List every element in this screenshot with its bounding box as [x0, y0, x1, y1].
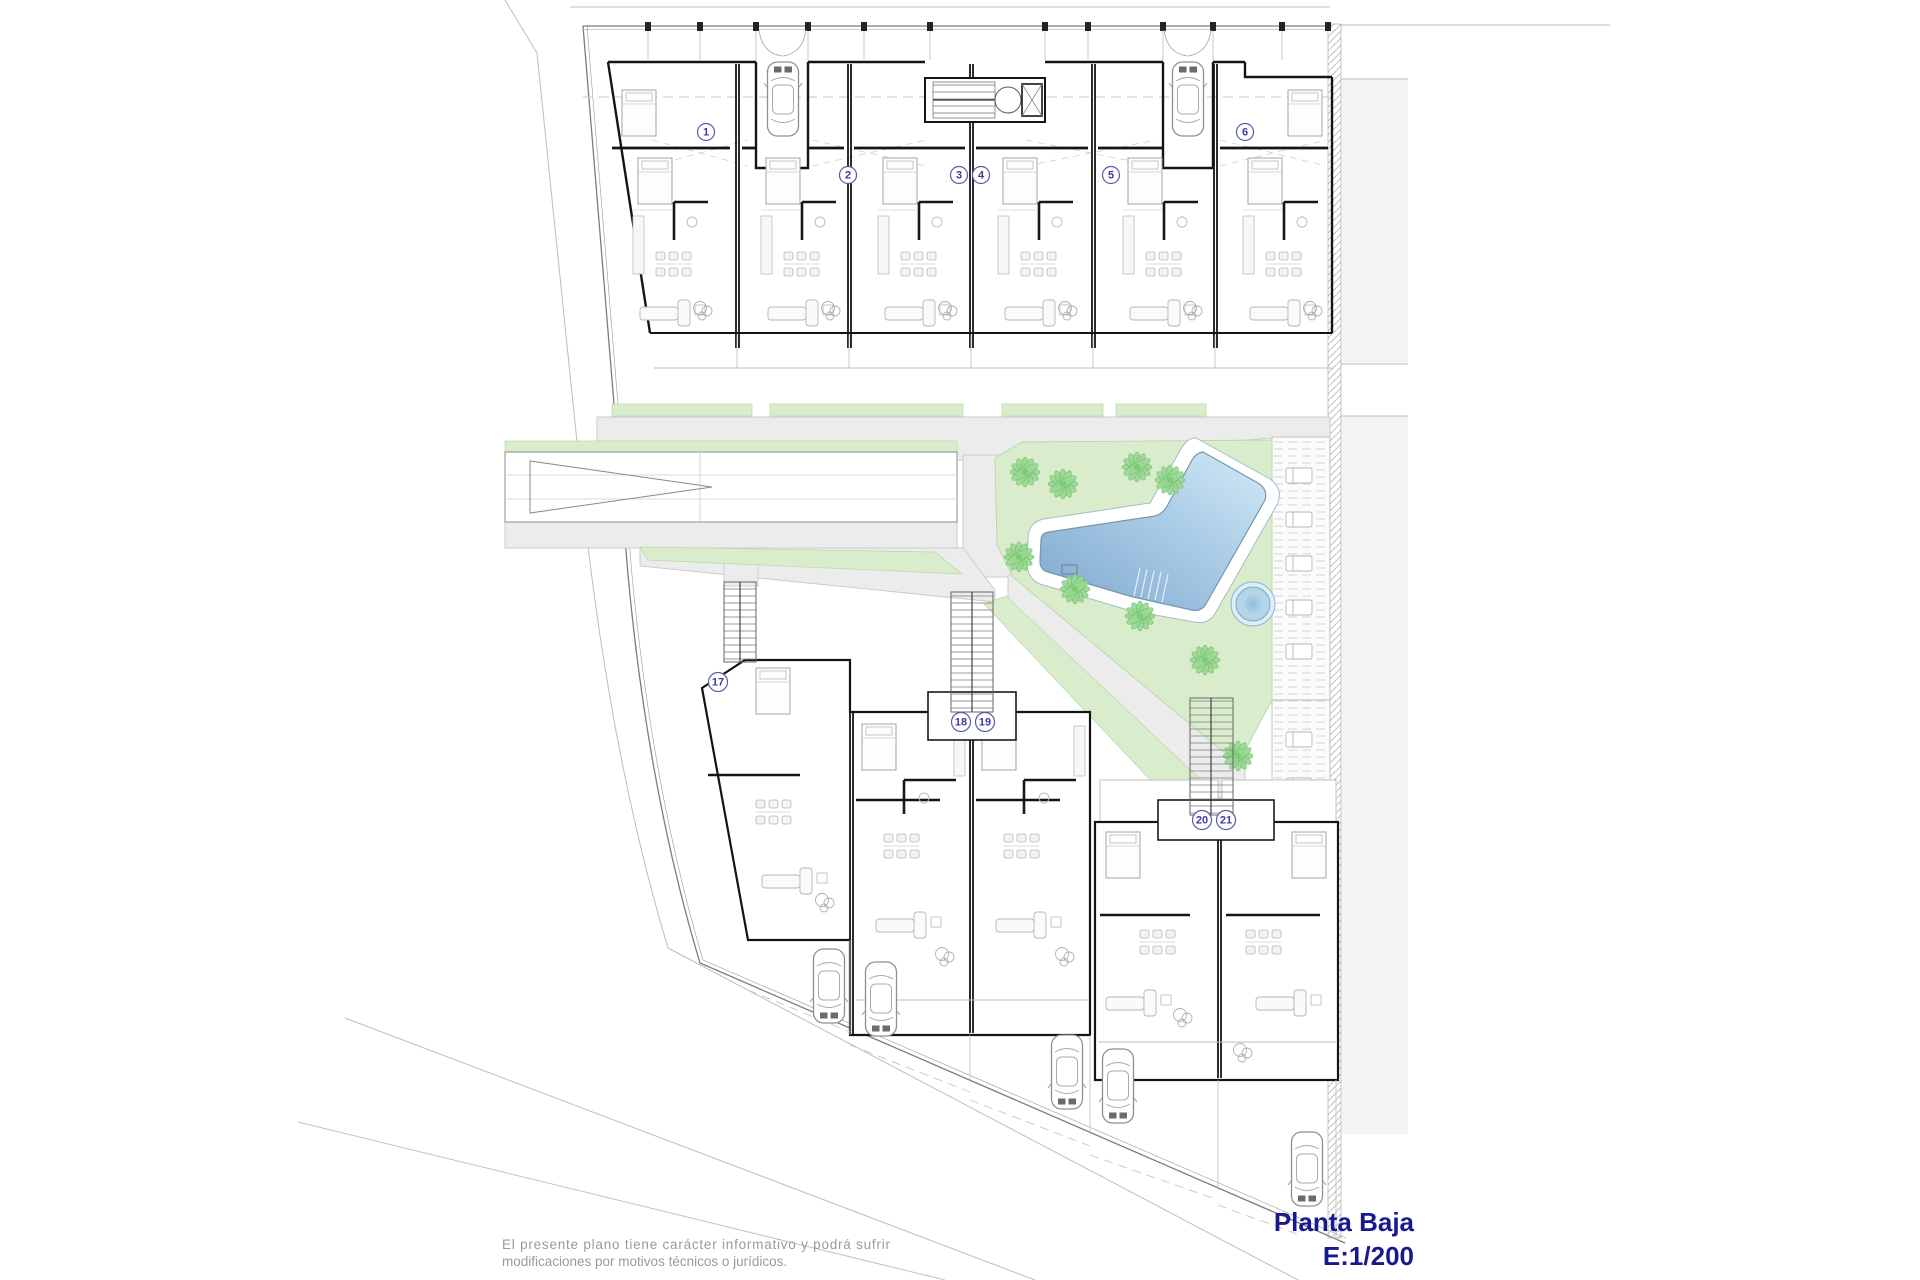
terrace-walls [650, 333, 1332, 368]
car-icon [810, 949, 848, 1023]
unit-badge-21: 21 [1217, 811, 1236, 830]
floor-plan-page: 1 2 3 4 5 6 17 18 19 20 21 Planta Baja E… [0, 0, 1920, 1280]
jacuzzi-icon [1231, 582, 1275, 626]
site-plan-drawing: 1 2 3 4 5 6 17 18 19 20 21 Planta Baja E… [0, 0, 1920, 1280]
unit-badge-4: 4 [973, 167, 990, 184]
disclaimer: El presente plano tiene carácter informa… [502, 1237, 891, 1269]
unit-badge-20: 20 [1193, 811, 1212, 830]
svg-text:18: 18 [955, 717, 967, 729]
scale-label: E:1/200 [1323, 1241, 1414, 1271]
unit-badge-6: 6 [1237, 124, 1254, 141]
car-icon [862, 962, 900, 1036]
title-block: Planta Baja E:1/200 [1274, 1207, 1415, 1271]
neighbor-plot-top [1342, 79, 1408, 363]
svg-text:2: 2 [845, 170, 851, 182]
svg-text:21: 21 [1220, 815, 1232, 827]
svg-text:20: 20 [1196, 815, 1208, 827]
stair-core [925, 78, 1045, 122]
bed-icon [1288, 90, 1322, 136]
unit-badge-5: 5 [1103, 167, 1120, 184]
unit-badge-1: 1 [698, 124, 715, 141]
car-icon [1099, 1049, 1137, 1123]
disclaimer-line-2: modificaciones por motivos técnicos o ju… [502, 1254, 787, 1269]
car-icon [764, 62, 802, 136]
svg-text:5: 5 [1108, 170, 1114, 182]
svg-text:17: 17 [712, 677, 724, 689]
car-icon [1288, 1132, 1326, 1206]
unit-badge-2: 2 [840, 167, 857, 184]
svg-text:4: 4 [978, 170, 985, 182]
top-building [608, 62, 1332, 368]
neighbor-plot-bottom [1342, 416, 1408, 1134]
car-icon [1048, 1035, 1086, 1109]
svg-text:3: 3 [956, 170, 962, 182]
unit-badge-3: 3 [951, 167, 968, 184]
parking-cross-marks [652, 140, 1326, 166]
floor-title: Planta Baja [1274, 1207, 1415, 1237]
bed-icon [622, 90, 656, 136]
gate-door-arcs [759, 30, 1211, 56]
garage-ramp [505, 441, 957, 522]
neighbor-plots [1328, 24, 1610, 1238]
unit-badge-17: 17 [709, 673, 728, 692]
unit-badge-18: 18 [952, 713, 971, 732]
ramp-lower-path [505, 522, 957, 548]
planter-strip [505, 441, 957, 452]
unit-badge-19: 19 [976, 713, 995, 732]
svg-text:1: 1 [703, 127, 709, 139]
disclaimer-line-1: El presente plano tiene carácter informa… [502, 1237, 891, 1252]
svg-text:19: 19 [979, 717, 991, 729]
car-icon [1169, 62, 1207, 136]
svg-text:6: 6 [1242, 127, 1248, 139]
